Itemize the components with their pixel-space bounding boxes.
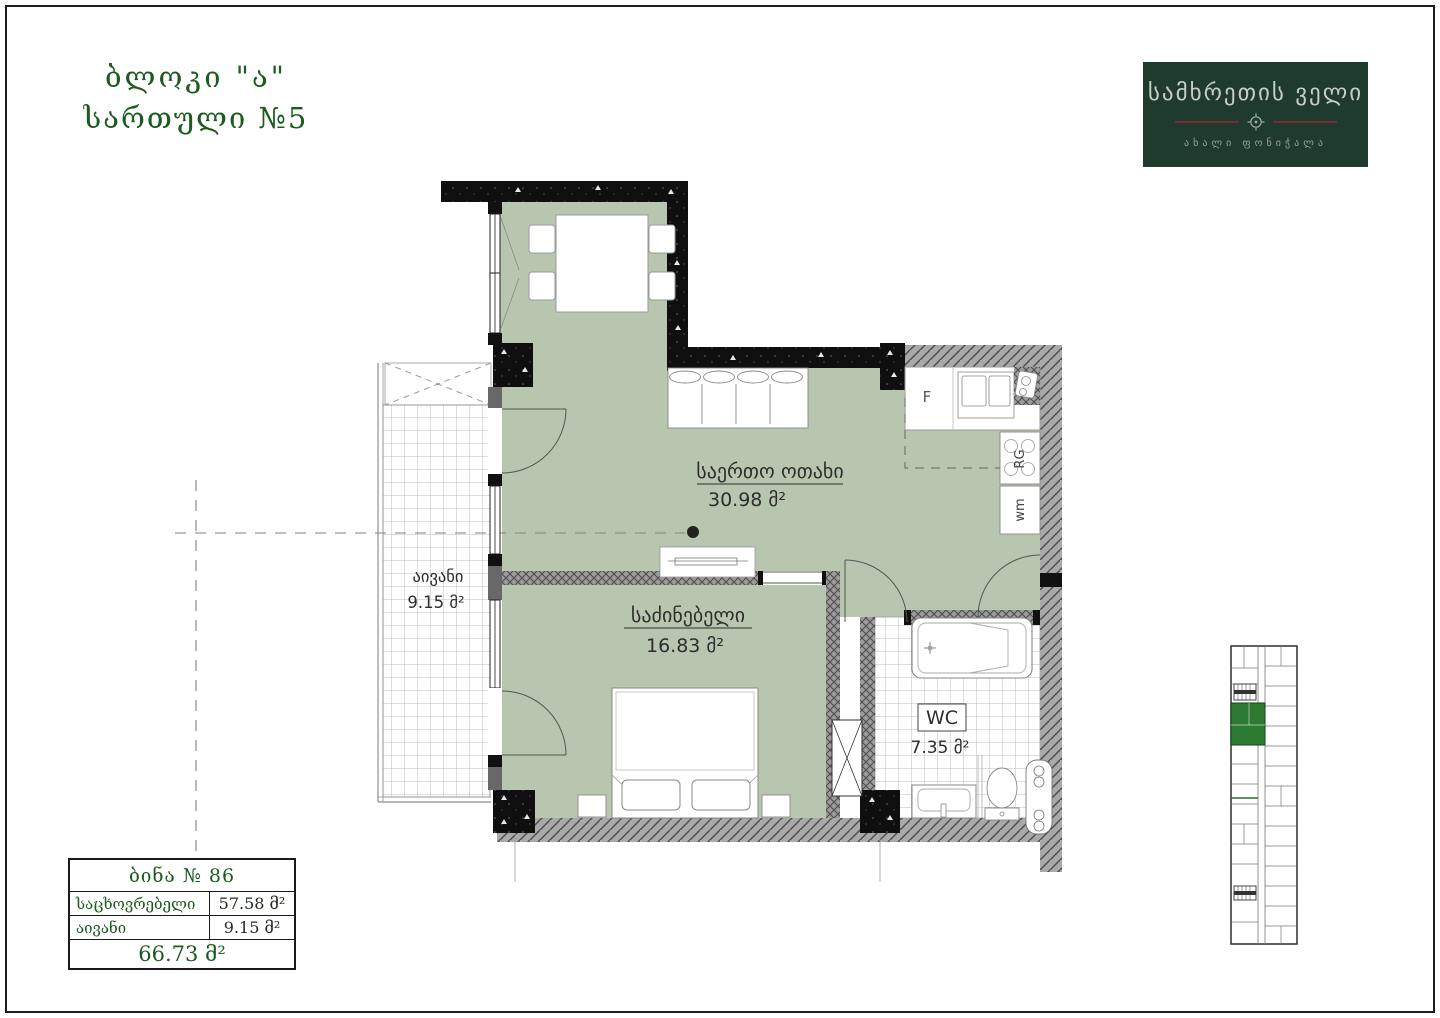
- radiator: [1026, 760, 1052, 834]
- row-balcony-label: აივანი: [69, 916, 210, 940]
- table-row: საცხოვრებელი 57.58 მ²: [69, 892, 295, 916]
- table-row: ბინა № 86: [69, 859, 295, 892]
- balcony-name: აივანი: [413, 567, 464, 586]
- floor-title: სართული №5: [72, 101, 320, 135]
- kitchen-sink: [958, 372, 1014, 418]
- bed: [612, 688, 758, 818]
- washing-machine: wm: [1000, 486, 1040, 534]
- row-living-value: 57.58 მ²: [210, 892, 296, 916]
- minimap-unit-highlight: [1231, 703, 1265, 745]
- washer-label: wm: [1013, 498, 1028, 521]
- building-overview: [1228, 638, 1312, 954]
- table-row: 66.73 მ²: [69, 940, 295, 970]
- floor-plan: F RG wm: [170, 170, 1170, 970]
- brand-name: სამხრეთის ველი: [1148, 80, 1363, 106]
- tv-console: [660, 547, 755, 577]
- bedroom-area: 16.83 მ²: [646, 635, 724, 657]
- stove-label: RG: [1013, 449, 1028, 468]
- living-room-area: 30.98 მ²: [708, 489, 786, 511]
- brand-divider: [1175, 113, 1337, 131]
- row-balcony-value: 9.15 მ²: [210, 916, 296, 940]
- total-area: 66.73 მ²: [69, 940, 295, 970]
- nightstand-left: [578, 795, 606, 817]
- stair-core-bottom: [1234, 886, 1256, 900]
- stair-core-top: [1234, 684, 1256, 700]
- axis-marker-dot: [687, 526, 699, 538]
- sofa: [668, 368, 808, 428]
- toilet: [985, 768, 1019, 820]
- wc-name: WC: [926, 707, 958, 729]
- nightstand-right: [762, 795, 790, 817]
- brand-logo: სამხრეთის ველი ახალი ფონიჭალა: [1143, 62, 1368, 167]
- kitchen-counter: F: [905, 367, 1040, 430]
- sheet-heading: ბლოკი "ა" სართული №5: [72, 60, 320, 135]
- bathtub: [912, 618, 1032, 678]
- balcony-area: 9.15 მ²: [407, 593, 464, 612]
- compass-icon: [1247, 113, 1265, 131]
- living-room-name: საერთო ოთახი: [696, 459, 843, 483]
- wc-area: 7.35 მ²: [911, 738, 970, 758]
- vent-shaft: [832, 720, 862, 796]
- bedroom-name: საძინებელი: [631, 603, 745, 627]
- corner-sink: [1014, 367, 1040, 405]
- fridge-label: F: [923, 388, 932, 406]
- apartment-number: ბინა № 86: [69, 859, 295, 892]
- table-row: აივანი 9.15 მ²: [69, 916, 295, 940]
- summary-table: ბინა № 86 საცხოვრებელი 57.58 მ² აივანი 9…: [68, 858, 296, 970]
- row-living-label: საცხოვრებელი: [69, 892, 210, 916]
- block-title: ბლოკი "ა": [72, 60, 320, 94]
- brand-tagline: ახალი ფონიჭალა: [1184, 138, 1327, 149]
- stove: RG: [1000, 432, 1040, 484]
- wc-sink: [912, 785, 976, 818]
